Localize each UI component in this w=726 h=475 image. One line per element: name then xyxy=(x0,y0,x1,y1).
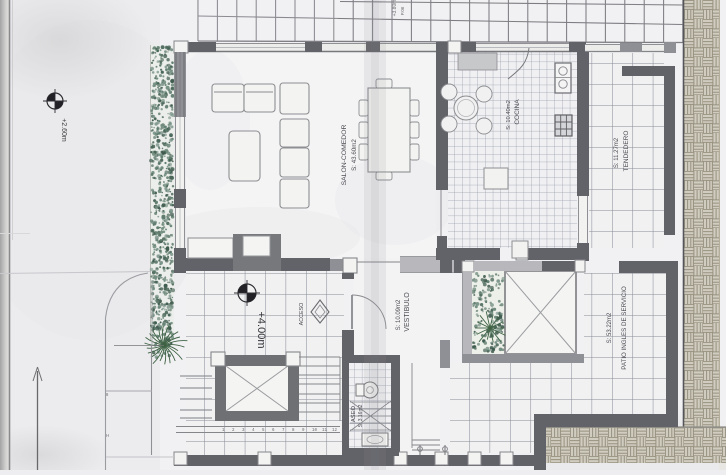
svg-text:10: 10 xyxy=(312,429,318,433)
svg-text:TENDEDERO: TENDEDERO xyxy=(623,131,630,172)
svg-text:VESTIBULO: VESTIBULO xyxy=(404,292,411,332)
svg-text:S: 10.09m2: S: 10.09m2 xyxy=(396,299,402,330)
svg-text:SALON-COMEDOR: SALON-COMEDOR xyxy=(341,125,348,186)
svg-text:S: 53.22m2: S: 53.22m2 xyxy=(607,312,613,343)
svg-text:11: 11 xyxy=(322,429,328,433)
svg-text:S: 3.16m2: S: 3.16m2 xyxy=(358,404,364,427)
svg-text:S: 43.60m2: S: 43.60m2 xyxy=(351,139,358,171)
svg-text:H: H xyxy=(106,433,109,438)
svg-text:P.06: P.06 xyxy=(400,6,405,15)
svg-text:S: 11.27m2: S: 11.27m2 xyxy=(614,137,620,168)
svg-text:ASEO: ASEO xyxy=(351,405,357,422)
svg-text:ACCESO: ACCESO xyxy=(299,303,305,326)
svg-text:+4.00m: +4.00m xyxy=(255,312,267,349)
svg-text:PATIO INGLES DE SERVICIO: PATIO INGLES DE SERVICIO xyxy=(621,286,628,370)
svg-text:+3.80m: +3.80m xyxy=(392,0,398,16)
svg-text:12: 12 xyxy=(332,429,338,433)
svg-text:S: 10.40m2: S: 10.40m2 xyxy=(506,100,512,130)
svg-text:+2.60m: +2.60m xyxy=(60,118,67,142)
svg-text:COCINA: COCINA xyxy=(514,99,521,125)
